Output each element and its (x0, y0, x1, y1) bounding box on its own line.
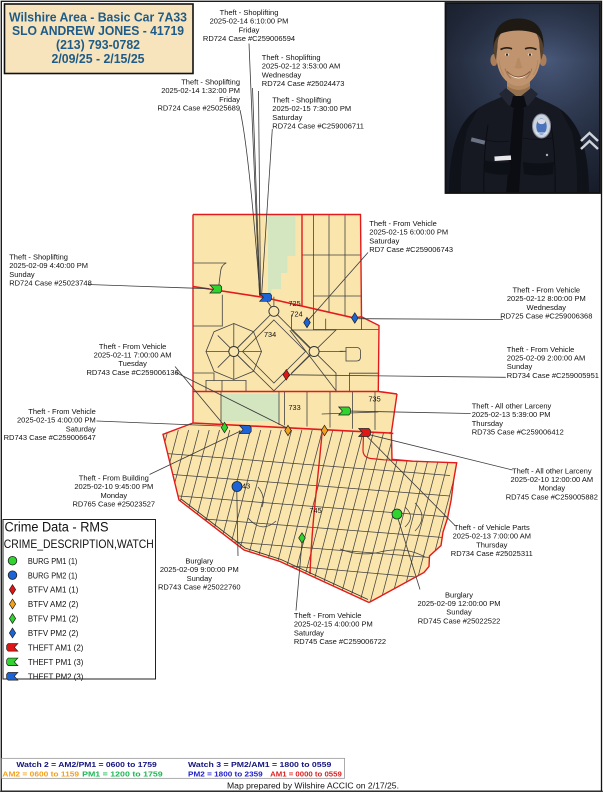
svg-text:Theft - From Vehicle: Theft - From Vehicle (513, 286, 581, 295)
svg-text:2025-02-09 9:00:00 PM: 2025-02-09 9:00:00 PM (160, 565, 239, 574)
svg-text:2025-02-14 1:32:00 PM: 2025-02-14 1:32:00 PM (161, 86, 240, 95)
svg-text:Friday: Friday (219, 95, 240, 104)
svg-text:Watch 2 = AM2/PM1 = 0600 to 17: Watch 2 = AM2/PM1 = 0600 to 1759 (16, 762, 157, 769)
svg-text:RD724 Case #25025689: RD724 Case #25025689 (157, 104, 240, 113)
svg-text:734: 734 (264, 330, 276, 339)
svg-text:BTFV PM2 (2): BTFV PM2 (2) (28, 628, 79, 638)
svg-text:733: 733 (289, 403, 301, 412)
svg-text:RD735 Case #C259006412: RD735 Case #C259006412 (472, 428, 564, 437)
svg-text:Tuesday: Tuesday (118, 359, 147, 368)
svg-text:Theft - Shoplifting: Theft - Shoplifting (262, 53, 321, 62)
svg-text:RD745 Case #25022522: RD745 Case #25022522 (418, 616, 501, 625)
svg-text:Crime Data - RMS: Crime Data - RMS (5, 520, 109, 535)
svg-text:Theft - Shoplifting: Theft - Shoplifting (181, 78, 240, 87)
svg-text:Friday: Friday (239, 25, 260, 34)
svg-text:2025-02-15 4:00:00 PM: 2025-02-15 4:00:00 PM (294, 620, 373, 629)
svg-text:2025-02-12 3:53:00 AM: 2025-02-12 3:53:00 AM (262, 62, 340, 71)
svg-text:BTFV PM1 (2): BTFV PM1 (2) (28, 614, 79, 624)
svg-text:Sunday: Sunday (446, 608, 472, 617)
svg-text:Saturday: Saturday (272, 113, 302, 122)
svg-text:RD743 Case #C259006647: RD743 Case #C259006647 (4, 433, 96, 442)
svg-text:2025-02-13 7:00:00 AM: 2025-02-13 7:00:00 AM (453, 532, 531, 541)
svg-text:AM1 = 0000 to 0559: AM1 = 0000 to 0559 (270, 771, 342, 778)
svg-text:2025-02-09 4:40:00 PM: 2025-02-09 4:40:00 PM (9, 261, 88, 270)
svg-text:Map prepared by Wilshire ACCIC: Map prepared by Wilshire ACCIC on 2/17/2… (227, 780, 399, 790)
svg-text:2025-02-12 8:00:00 PM: 2025-02-12 8:00:00 PM (507, 294, 586, 303)
svg-text:2025-02-14 6:10:00 PM: 2025-02-14 6:10:00 PM (210, 17, 289, 26)
svg-text:RD743 Case #25022760: RD743 Case #25022760 (158, 583, 241, 592)
svg-text:2025-02-10 12:00:00 AM: 2025-02-10 12:00:00 AM (511, 475, 594, 484)
svg-text:RD724 Case #C259006594: RD724 Case #C259006594 (203, 34, 295, 43)
svg-text:2025-02-09 12:00:00 PM: 2025-02-09 12:00:00 PM (418, 599, 501, 608)
svg-text:2025-02-09 2:00:00 AM: 2025-02-09 2:00:00 AM (507, 354, 585, 363)
svg-text:Theft - From Vehicle: Theft - From Vehicle (507, 345, 575, 354)
svg-text:2/09/25 - 2/15/25: 2/09/25 - 2/15/25 (52, 52, 145, 66)
svg-text:745: 745 (310, 506, 322, 515)
svg-text:2025-02-10 9:45:00 PM: 2025-02-10 9:45:00 PM (74, 482, 153, 491)
svg-text:725: 725 (289, 299, 301, 308)
svg-text:(213) 793-0782: (213) 793-0782 (56, 38, 140, 52)
svg-text:Theft - From Building: Theft - From Building (79, 474, 149, 483)
svg-text:Theft - All other Larceny: Theft - All other Larceny (512, 466, 592, 475)
svg-text:Thursday: Thursday (472, 419, 504, 428)
svg-text:BTFV AM1 (1): BTFV AM1 (1) (28, 585, 79, 595)
svg-text:Burglary: Burglary (185, 557, 213, 566)
svg-text:RD745 Case #C259006722: RD745 Case #C259006722 (294, 637, 386, 646)
svg-text:2025-02-15 6:00:00 PM: 2025-02-15 6:00:00 PM (369, 228, 448, 237)
svg-text:RD7 Case #C259006743: RD7 Case #C259006743 (369, 245, 453, 254)
svg-text:SLO ANDREW JONES - 41719: SLO ANDREW JONES - 41719 (12, 24, 184, 38)
svg-text:Theft - From Vehicle: Theft - From Vehicle (99, 342, 167, 351)
svg-text:BTFV AM2 (2): BTFV AM2 (2) (28, 599, 79, 609)
svg-text:Theft - of Vehicle Parts: Theft - of Vehicle Parts (454, 523, 530, 532)
svg-text:Monday: Monday (538, 484, 565, 493)
svg-text:Wilshire Area - Basic Car 7A33: Wilshire Area - Basic Car 7A33 (9, 10, 187, 24)
svg-text:2025-02-13 5:39:00 PM: 2025-02-13 5:39:00 PM (472, 410, 551, 419)
svg-text:THEFT AM1 (2): THEFT AM1 (2) (28, 643, 84, 653)
svg-text:AM2 = 0600 to 1159: AM2 = 0600 to 1159 (2, 771, 79, 778)
svg-text:Theft - Shoplifting: Theft - Shoplifting (220, 8, 279, 17)
svg-text:2025-02-15 7:30:00 PM: 2025-02-15 7:30:00 PM (272, 104, 351, 113)
svg-text:Watch 3 = PM2/AM1 = 1800 to 05: Watch 3 = PM2/AM1 = 1800 to 0559 (188, 762, 331, 769)
svg-text:Burglary: Burglary (445, 590, 473, 599)
svg-text:Sunday: Sunday (507, 362, 533, 371)
svg-text:CRIME_DESCRIPTION,WATCH: CRIME_DESCRIPTION,WATCH (4, 538, 154, 551)
svg-text:Theft - All other Larceny: Theft - All other Larceny (472, 402, 552, 411)
svg-text:RD724 Case #25024473: RD724 Case #25024473 (262, 79, 345, 88)
svg-text:THEFT PM1 (3): THEFT PM1 (3) (28, 657, 84, 667)
svg-text:2025-02-11 7:00:00 AM: 2025-02-11 7:00:00 AM (94, 351, 172, 360)
svg-text:Sunday: Sunday (187, 574, 213, 583)
svg-text:Saturday: Saturday (369, 236, 399, 245)
svg-text:RD725 Case #C259006368: RD725 Case #C259006368 (500, 312, 592, 321)
svg-text:RD765 Case #25023527: RD765 Case #25023527 (73, 500, 156, 509)
svg-text:Theft - Shoplifting: Theft - Shoplifting (9, 253, 68, 262)
svg-text:2025-02-15 4:00:00 PM: 2025-02-15 4:00:00 PM (17, 416, 96, 425)
svg-text:RD734 Case #25025311: RD734 Case #25025311 (451, 549, 533, 558)
svg-text:Theft - Shoplifting: Theft - Shoplifting (272, 96, 331, 105)
svg-text:Theft - From Vehicle: Theft - From Vehicle (28, 407, 96, 416)
svg-text:Saturday: Saturday (66, 424, 96, 433)
svg-text:RD745 Case #C259005882: RD745 Case #C259005882 (506, 492, 598, 501)
svg-text:Wednesday: Wednesday (262, 70, 302, 79)
svg-text:Monday: Monday (100, 491, 127, 500)
svg-text:735: 735 (369, 395, 381, 404)
svg-text:Saturday: Saturday (294, 628, 324, 637)
svg-text:BURG PM2 (1): BURG PM2 (1) (28, 570, 78, 580)
svg-text:Theft - From Vehicle: Theft - From Vehicle (369, 219, 437, 228)
svg-text:PM2 = 1800 to 2359: PM2 = 1800 to 2359 (188, 771, 263, 778)
svg-text:RD743 Case #C259006136: RD743 Case #C259006136 (87, 368, 179, 377)
svg-text:724: 724 (291, 310, 303, 319)
svg-text:Thursday: Thursday (476, 540, 508, 549)
svg-text:Wednesday: Wednesday (527, 303, 567, 312)
svg-text:PM1 = 1200 to 1759: PM1 = 1200 to 1759 (82, 771, 163, 778)
svg-text:Sunday: Sunday (9, 270, 35, 279)
svg-text:RD724 Case #25023748: RD724 Case #25023748 (9, 279, 92, 288)
svg-text:RD724 Case #C259006711: RD724 Case #C259006711 (272, 122, 364, 131)
svg-text:Theft - From Vehicle: Theft - From Vehicle (294, 611, 362, 620)
svg-text:BURG PM1 (1): BURG PM1 (1) (28, 556, 78, 566)
svg-text:THEFT PM2 (3): THEFT PM2 (3) (28, 671, 84, 681)
svg-text:RD734 Case #C259005951: RD734 Case #C259005951 (507, 371, 599, 380)
